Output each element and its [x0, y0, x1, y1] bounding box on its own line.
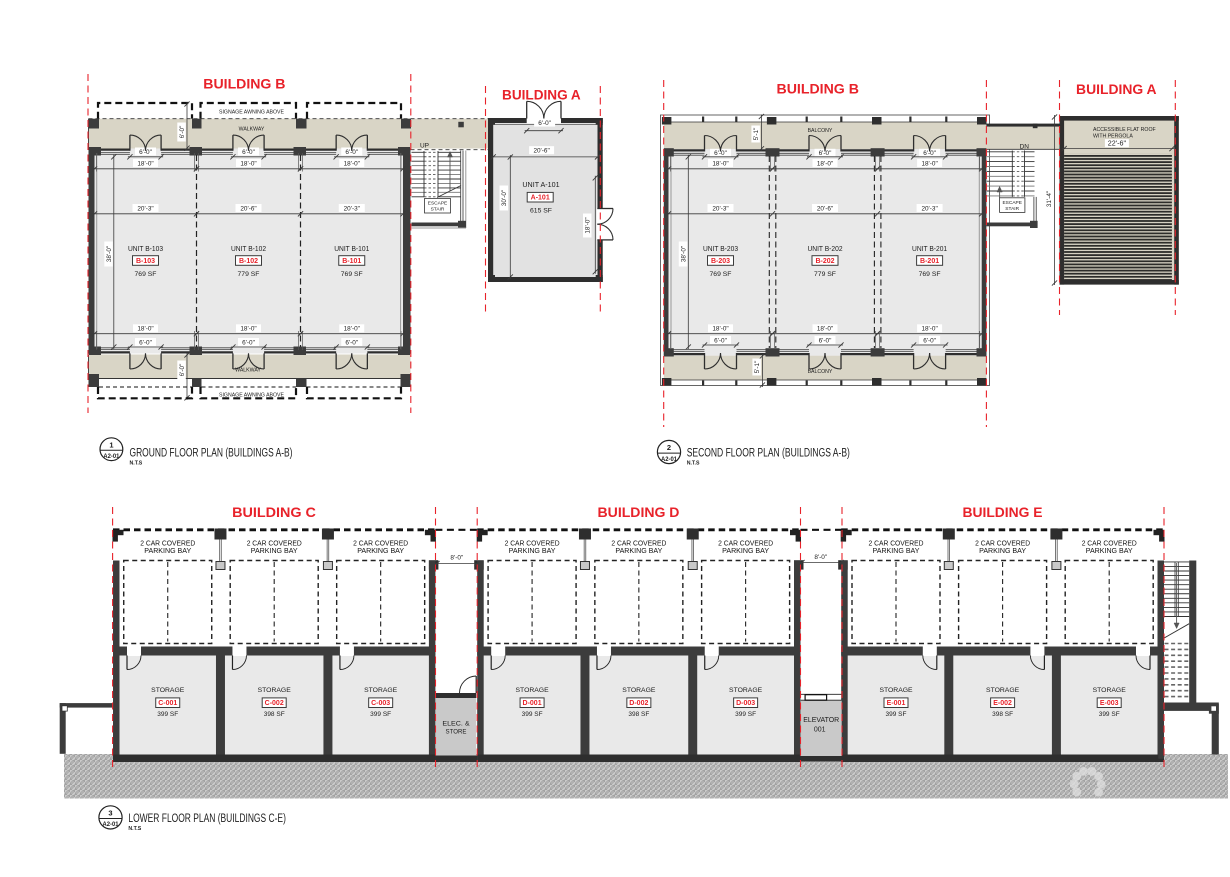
svg-text:N.T.S: N.T.S [130, 460, 143, 466]
svg-text:WALKWAY: WALKWAY [235, 368, 261, 374]
svg-text:ELEVATOR: ELEVATOR [803, 717, 839, 724]
svg-text:8'-0": 8'-0" [814, 554, 827, 561]
svg-text:C-002: C-002 [265, 700, 284, 707]
svg-text:SECOND FLOOR PLAN (BUILDINGS A: SECOND FLOOR PLAN (BUILDINGS A-B) [687, 447, 850, 459]
svg-text:6'-0": 6'-0" [179, 364, 186, 377]
svg-text:399 SF: 399 SF [370, 711, 391, 718]
svg-text:STAIR: STAIR [1005, 206, 1019, 212]
svg-text:18'-0": 18'-0" [344, 326, 360, 333]
svg-text:SIGNAGE AWNING ABOVE: SIGNAGE AWNING ABOVE [219, 392, 284, 398]
svg-text:399 SF: 399 SF [735, 711, 756, 718]
svg-text:001: 001 [814, 727, 826, 734]
svg-text:BUILDING B: BUILDING B [777, 82, 859, 98]
svg-text:779 SF: 779 SF [814, 271, 836, 278]
svg-text:769 SF: 769 SF [135, 271, 157, 278]
svg-text:615 SF: 615 SF [530, 207, 552, 214]
svg-text:399 SF: 399 SF [157, 711, 178, 718]
svg-text:BUILDING C: BUILDING C [232, 505, 316, 521]
svg-text:B-202: B-202 [815, 258, 834, 265]
svg-text:N.T.S: N.T.S [687, 460, 700, 466]
svg-text:38'-0": 38'-0" [680, 246, 687, 262]
svg-text:D-001: D-001 [523, 700, 542, 707]
svg-text:STAIR: STAIR [431, 207, 445, 213]
svg-text:779 SF: 779 SF [238, 271, 260, 278]
svg-text:399 SF: 399 SF [886, 711, 907, 718]
svg-text:D-003: D-003 [736, 700, 755, 707]
svg-text:A2-01: A2-01 [661, 457, 678, 463]
svg-text:BUILDING A: BUILDING A [1076, 82, 1157, 98]
svg-text:769 SF: 769 SF [710, 271, 732, 278]
svg-text:6'-0": 6'-0" [242, 339, 255, 346]
svg-text:18'-0": 18'-0" [921, 326, 937, 333]
svg-text:31'-4": 31'-4" [1046, 191, 1053, 207]
svg-text:SIGNAGE AWNING ABOVE: SIGNAGE AWNING ABOVE [219, 109, 284, 115]
svg-text:BUILDING A: BUILDING A [502, 87, 581, 103]
svg-text:ESCAPE: ESCAPE [428, 201, 447, 207]
svg-text:STORAGE: STORAGE [364, 687, 398, 694]
svg-text:STORAGE: STORAGE [151, 687, 185, 694]
svg-text:18'-0": 18'-0" [712, 326, 728, 333]
svg-text:769 SF: 769 SF [919, 271, 941, 278]
svg-text:6'-0": 6'-0" [714, 337, 727, 344]
svg-text:STORAGE: STORAGE [1093, 687, 1127, 694]
svg-text:UP: UP [420, 142, 429, 149]
svg-text:18'-0": 18'-0" [137, 160, 153, 167]
svg-text:20'-6": 20'-6" [533, 148, 549, 155]
svg-text:ACCESSIBLE FLAT ROOF: ACCESSIBLE FLAT ROOF [1093, 127, 1156, 133]
svg-text:398 SF: 398 SF [992, 711, 1013, 718]
svg-text:3: 3 [108, 809, 112, 818]
svg-text:399 SF: 399 SF [522, 711, 543, 718]
svg-text:N.T.S: N.T.S [128, 826, 141, 832]
svg-text:STORAGE: STORAGE [258, 687, 292, 694]
svg-text:PARKING BAY: PARKING BAY [979, 546, 1026, 555]
svg-text:18'-0": 18'-0" [712, 160, 728, 167]
svg-text:398 SF: 398 SF [264, 711, 285, 718]
svg-text:B-103: B-103 [136, 258, 155, 265]
svg-text:A2-01: A2-01 [103, 454, 120, 460]
svg-text:D-002: D-002 [629, 700, 648, 707]
svg-text:20'-3": 20'-3" [344, 205, 360, 212]
svg-text:STORAGE: STORAGE [516, 687, 550, 694]
svg-text:ESCAPE: ESCAPE [1002, 200, 1021, 206]
svg-text:B-101: B-101 [342, 258, 361, 265]
svg-text:6'-0": 6'-0" [819, 337, 832, 344]
svg-text:PARKING BAY: PARKING BAY [357, 546, 404, 555]
svg-text:UNIT B-202: UNIT B-202 [807, 244, 842, 253]
svg-text:18'-0": 18'-0" [585, 217, 592, 233]
svg-text:UNIT A-101: UNIT A-101 [522, 180, 559, 189]
svg-text:PARKING BAY: PARKING BAY [722, 546, 769, 555]
svg-text:5'-1": 5'-1" [753, 128, 760, 141]
svg-text:UNIT B-102: UNIT B-102 [231, 244, 266, 253]
svg-text:8'-0": 8'-0" [450, 554, 463, 561]
svg-text:2: 2 [667, 443, 671, 452]
svg-text:38'-0": 38'-0" [106, 246, 113, 262]
svg-text:A-101: A-101 [531, 195, 550, 202]
svg-text:PARKING BAY: PARKING BAY [873, 546, 920, 555]
svg-text:E-003: E-003 [1100, 700, 1119, 707]
svg-text:22'-6": 22'-6" [1108, 139, 1127, 148]
svg-text:UNIT B-201: UNIT B-201 [912, 244, 947, 253]
svg-text:5'-1": 5'-1" [754, 361, 761, 374]
svg-text:18'-0": 18'-0" [344, 160, 360, 167]
svg-text:C-001: C-001 [158, 700, 177, 707]
svg-text:B-201: B-201 [920, 258, 939, 265]
svg-text:18'-0": 18'-0" [240, 160, 256, 167]
svg-text:6'-0": 6'-0" [923, 337, 936, 344]
svg-text:BUILDING D: BUILDING D [598, 505, 680, 521]
svg-text:18'-0": 18'-0" [240, 326, 256, 333]
svg-text:STORE: STORE [446, 729, 467, 736]
svg-text:6'-0": 6'-0" [179, 126, 186, 139]
svg-text:30'-0": 30'-0" [501, 190, 508, 206]
svg-text:E-001: E-001 [887, 700, 906, 707]
svg-text:WALKWAY: WALKWAY [239, 126, 265, 132]
svg-text:BUILDING E: BUILDING E [963, 505, 1043, 521]
svg-text:E-002: E-002 [993, 700, 1012, 707]
svg-text:PARKING BAY: PARKING BAY [251, 546, 298, 555]
svg-text:STORAGE: STORAGE [729, 687, 763, 694]
svg-text:B-203: B-203 [711, 258, 730, 265]
svg-text:1: 1 [109, 440, 113, 449]
svg-text:PARKING BAY: PARKING BAY [1086, 546, 1133, 555]
svg-text:BALCONY: BALCONY [808, 128, 833, 134]
svg-text:B-102: B-102 [239, 258, 258, 265]
svg-text:18'-0": 18'-0" [817, 326, 833, 333]
svg-text:BUILDING B: BUILDING B [203, 77, 285, 93]
svg-text:PARKING BAY: PARKING BAY [615, 546, 662, 555]
svg-text:PARKING BAY: PARKING BAY [144, 546, 191, 555]
svg-text:6'-0": 6'-0" [538, 120, 551, 127]
svg-text:20'-6": 20'-6" [817, 205, 833, 212]
svg-text:18'-0": 18'-0" [137, 326, 153, 333]
svg-text:PARKING BAY: PARKING BAY [509, 546, 556, 555]
svg-text:UNIT B-103: UNIT B-103 [128, 244, 163, 253]
svg-text:398 SF: 398 SF [628, 711, 649, 718]
svg-text:20'-3": 20'-3" [921, 205, 937, 212]
svg-text:STORAGE: STORAGE [879, 687, 913, 694]
svg-text:20'-6": 20'-6" [240, 205, 256, 212]
svg-text:ELEC. &: ELEC. & [442, 721, 470, 728]
svg-text:UNIT B-203: UNIT B-203 [703, 244, 738, 253]
svg-text:LOWER FLOOR PLAN (BUILDINGS C-: LOWER FLOOR PLAN (BUILDINGS C-E) [128, 813, 286, 825]
svg-text:20'-3": 20'-3" [137, 205, 153, 212]
svg-text:18'-0": 18'-0" [921, 160, 937, 167]
svg-text:18'-0": 18'-0" [817, 160, 833, 167]
svg-text:A2-01: A2-01 [103, 822, 120, 828]
svg-text:6'-0": 6'-0" [345, 339, 358, 346]
svg-text:6'-0": 6'-0" [139, 339, 152, 346]
svg-text:STORAGE: STORAGE [986, 687, 1020, 694]
svg-text:BALCONY: BALCONY [808, 369, 833, 375]
svg-text:STORAGE: STORAGE [622, 687, 656, 694]
svg-text:20'-3": 20'-3" [712, 205, 728, 212]
svg-text:UNIT B-101: UNIT B-101 [334, 244, 369, 253]
svg-text:769 SF: 769 SF [341, 271, 363, 278]
svg-text:DN: DN [1020, 143, 1030, 150]
svg-text:399 SF: 399 SF [1099, 711, 1120, 718]
svg-text:GROUND FLOOR PLAN (BUILDINGS A: GROUND FLOOR PLAN (BUILDINGS A-B) [130, 447, 293, 459]
svg-text:C-003: C-003 [371, 700, 390, 707]
